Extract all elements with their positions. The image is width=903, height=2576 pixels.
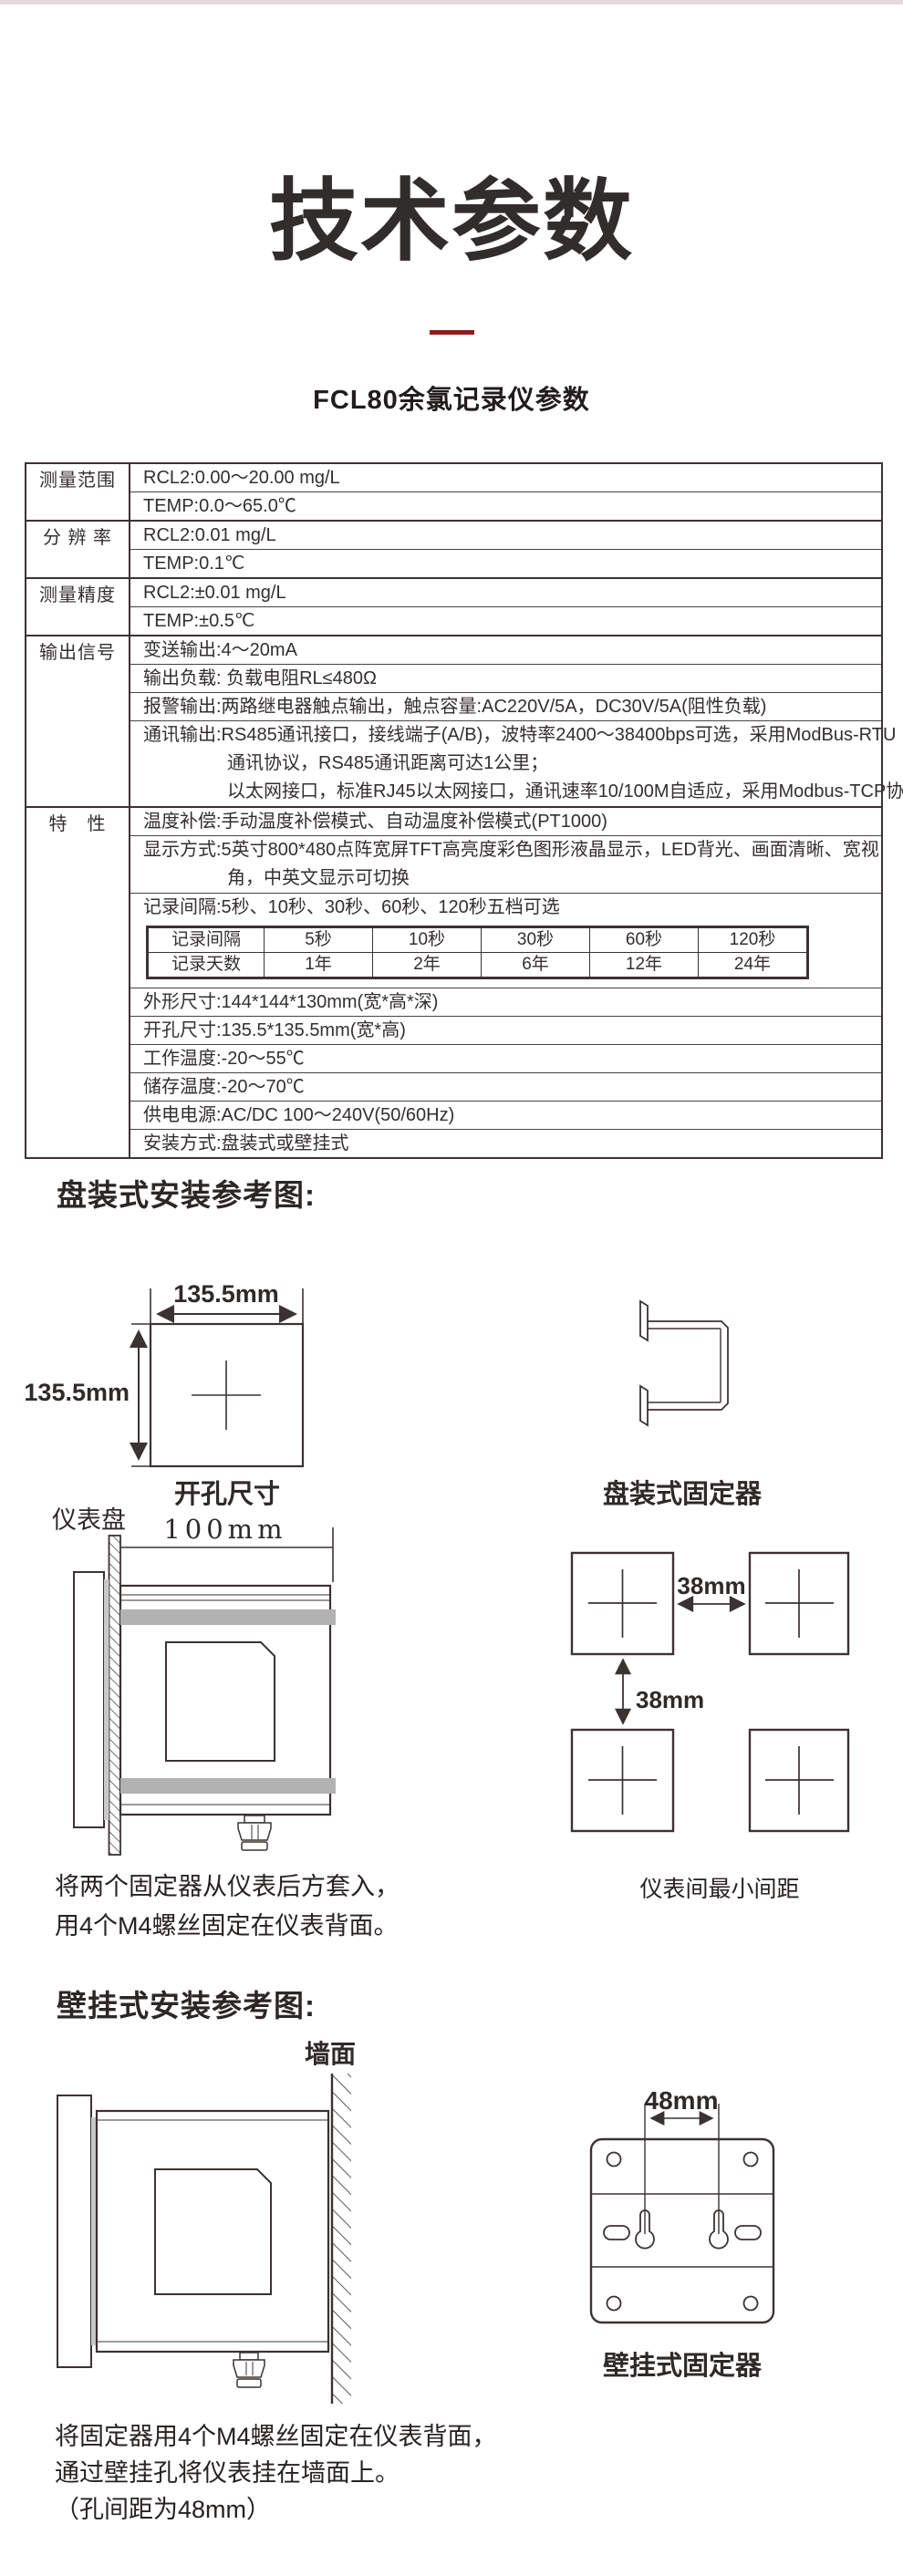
table-row: 外形尺寸:144*144*130mm(宽*高*深) xyxy=(26,988,882,1017)
table-row: TEMP:0.0～65.0℃ xyxy=(26,492,882,522)
rec-header-cell: 30秒 xyxy=(482,927,590,953)
table-row: 工作温度:-20～55℃ xyxy=(26,1045,882,1073)
spacing-v-label: 38mm xyxy=(636,1686,704,1713)
panel-cutout-diagram: 135.5mm 135.5mm 开孔尺寸 盘装式固定器 xyxy=(0,1258,903,1523)
spec-value: RCL2:±0.01 mg/L xyxy=(130,578,882,607)
record-interval-text: 记录间隔:5秒、10秒、30秒、60秒、120秒五档可选 xyxy=(143,894,877,922)
rec-days-cell: 24年 xyxy=(699,953,808,978)
hole-spacing-label: 48mm xyxy=(645,2086,719,2115)
table-row: 储存温度:-20～70℃ xyxy=(26,1073,882,1102)
table-row: 输出负载: 负载电阻RL≤480Ω xyxy=(26,665,882,693)
panel-mount-heading: 盘装式安装参考图: xyxy=(57,1177,316,1214)
wall-fixer-plate xyxy=(591,2139,773,2323)
spec-value: 供电电源:AC/DC 100～240V(50/60Hz) xyxy=(130,1102,882,1130)
spec-label-range: 测量范围 xyxy=(26,463,130,521)
side-slot xyxy=(735,2226,761,2240)
spec-label-output: 输出信号 xyxy=(26,636,130,807)
fixer-band-bottom xyxy=(120,1778,336,1794)
spec-value: 外形尺寸:144*144*130mm(宽*高*深) xyxy=(130,988,882,1017)
spec-value-record-interval: 记录间隔:5秒、10秒、30秒、60秒、120秒五档可选 记录间隔 5秒 10秒… xyxy=(130,894,882,988)
panel-mount-note: 将两个固定器从仪表后方套入， 用4个M4螺丝固定在仪表背面。 xyxy=(55,1867,400,1946)
table-row: 输出信号 变送输出:4～20mA xyxy=(26,636,882,665)
rec-header-cell: 5秒 xyxy=(265,927,373,953)
spec-value: RCL2:0.00～20.00 mg/L xyxy=(130,463,882,492)
panel-fixer-bracket xyxy=(640,1301,728,1425)
spec-value: 开孔尺寸:135.5*135.5mm(宽*高) xyxy=(130,1017,882,1045)
screw-hole xyxy=(607,2153,621,2167)
panel-note-line-2: 用4个M4螺丝固定在仪表背面。 xyxy=(55,1907,400,1946)
table-row: 安装方式:盘装式或壁挂式 xyxy=(26,1130,882,1159)
title-accent-dash xyxy=(430,330,474,335)
comm-line-3: 以太网接口，标准RJ45以太网接口，通讯速率10/100M自适应，采用Modbu… xyxy=(143,778,877,806)
body-recess-square xyxy=(155,2169,271,2294)
spec-label-resolution: 分 辨 率 xyxy=(26,521,130,578)
cutout-height-label: 135.5mm xyxy=(24,1379,130,1406)
wall-mount-heading: 壁挂式安装参考图: xyxy=(57,1988,316,2024)
table-row: 测量范围 RCL2:0.00～20.00 mg/L xyxy=(26,463,882,492)
spec-table: 测量范围 RCL2:0.00～20.00 mg/L TEMP:0.0～65.0℃… xyxy=(25,462,883,1159)
cutout-width-label: 135.5mm xyxy=(173,1280,279,1308)
table-row: 开孔尺寸:135.5*135.5mm(宽*高) xyxy=(26,1017,882,1045)
wall-mount-note: 将固定器用4个M4螺丝固定在仪表背面， 通过壁挂孔将仪表挂在墙面上。 （孔间距为… xyxy=(55,2418,497,2528)
bracket-bottom-tab xyxy=(640,1386,648,1425)
spec-value: 安装方式:盘装式或壁挂式 xyxy=(130,1130,882,1159)
spec-value: TEMP:0.0～65.0℃ xyxy=(130,492,882,522)
panel-label: 仪表盘 xyxy=(52,1506,126,1534)
spec-value: 输出负载: 负载电阻RL≤480Ω xyxy=(130,665,882,693)
rec-header-cell: 10秒 xyxy=(373,927,482,953)
fixer-band-top xyxy=(120,1609,336,1625)
screw-hole xyxy=(607,2297,621,2311)
bracket-outline xyxy=(648,1321,728,1410)
table-row: 分 辨 率 RCL2:0.01 mg/L xyxy=(26,521,882,550)
spec-label-features: 特 性 xyxy=(26,807,130,1158)
panel-wall-hatch xyxy=(109,1536,121,1855)
screw-hole xyxy=(744,2153,758,2167)
spec-value: 工作温度:-20～55℃ xyxy=(130,1045,882,1073)
depth-label: 100mm xyxy=(163,1514,286,1545)
table-row: 记录间隔 5秒 10秒 30秒 60秒 120秒 xyxy=(148,927,808,953)
table-row: 显示方式:5英寸800*480点阵宽屏TFT高亮度彩色图形液晶显示，LED背光、… xyxy=(26,836,882,894)
side-slot xyxy=(604,2226,629,2240)
wall-note-line-3: （孔间距为48mm） xyxy=(55,2491,497,2528)
panel-side-view-diagram: 仪表盘 100mm 38mm 38mm xyxy=(0,1505,903,1869)
spec-value: 报警输出:两路继电器触点输出，触点容量:AC220V/5A，DC30V/5A(阻… xyxy=(130,693,882,721)
rec-header-cell: 记录间隔 xyxy=(148,927,265,953)
min-spacing-caption: 仪表间最小间距 xyxy=(628,1871,811,1904)
rec-days-cell: 12年 xyxy=(590,953,699,978)
instrument-bezel xyxy=(57,2095,91,2367)
spec-value: 储存温度:-20～70℃ xyxy=(130,1073,882,1102)
table-row: 供电电源:AC/DC 100～240V(50/60Hz) xyxy=(26,1102,882,1130)
table-row: 通讯输出:RS485通讯接口，接线端子(A/B)，波特率2400～38400bp… xyxy=(26,721,882,808)
spec-value: 温度补偿:手动温度补偿模式、自动温度补偿模式(PT1000) xyxy=(130,807,882,836)
spec-value-display: 显示方式:5英寸800*480点阵宽屏TFT高亮度彩色图形液晶显示，LED背光、… xyxy=(130,836,882,894)
spacing-h-label: 38mm xyxy=(677,1572,745,1599)
rec-days-cell: 记录天数 xyxy=(148,953,265,978)
table-row: 记录天数 1年 2年 6年 12年 24年 xyxy=(148,953,808,978)
record-capacity-table: 记录间隔 5秒 10秒 30秒 60秒 120秒 记录天数 1年 2年 6年 xyxy=(146,926,809,979)
table-row: 报警输出:两路继电器触点输出，触点容量:AC220V/5A，DC30V/5A(阻… xyxy=(26,693,882,721)
rec-header-cell: 120秒 xyxy=(699,927,808,953)
page-title: 技术参数 xyxy=(0,173,903,268)
cable-gland-icon xyxy=(238,1816,271,1850)
wall-fixer-caption: 壁挂式固定器 xyxy=(603,2350,763,2381)
display-line-2: 角，中英文显示可切换 xyxy=(143,864,877,893)
instrument-bezel xyxy=(74,1572,104,1827)
spec-value: RCL2:0.01 mg/L xyxy=(130,521,882,550)
panel-note-line-1: 将两个固定器从仪表后方套入， xyxy=(55,1867,400,1907)
panel-gasket xyxy=(104,1579,109,1820)
cable-gland-icon xyxy=(234,2353,265,2387)
page-subtitle: FCL80余氯记录仪参数 xyxy=(0,378,903,417)
wall-label: 墙面 xyxy=(305,2040,356,2068)
rec-header-cell: 60秒 xyxy=(590,927,699,953)
table-row: 测量精度 RCL2:±0.01 mg/L xyxy=(26,578,882,607)
page-top-border xyxy=(0,0,903,5)
screw-hole xyxy=(744,2297,758,2311)
spec-value: 变送输出:4～20mA xyxy=(130,636,882,665)
wall-note-line-2: 通过壁挂孔将仪表挂在墙面上。 xyxy=(55,2455,497,2491)
rec-days-cell: 1年 xyxy=(265,953,373,978)
table-row: 记录间隔:5秒、10秒、30秒、60秒、120秒五档可选 记录间隔 5秒 10秒… xyxy=(26,894,882,988)
display-line-1: 显示方式:5英寸800*480点阵宽屏TFT高亮度彩色图形液晶显示，LED背光、… xyxy=(143,836,877,864)
comm-line-1: 通讯输出:RS485通讯接口，接线端子(A/B)，波特率2400～38400bp… xyxy=(143,721,877,750)
rec-days-cell: 2年 xyxy=(373,953,482,978)
table-row: TEMP:±0.5℃ xyxy=(26,607,882,636)
spec-value: TEMP:0.1℃ xyxy=(130,550,882,579)
table-row: 特 性 温度补偿:手动温度补偿模式、自动温度补偿模式(PT1000) xyxy=(26,807,882,836)
wall-note-line-1: 将固定器用4个M4螺丝固定在仪表背面， xyxy=(55,2418,497,2455)
wall-hatch xyxy=(332,2074,351,2404)
spec-label-accuracy: 测量精度 xyxy=(26,578,130,636)
rec-days-cell: 6年 xyxy=(482,953,590,978)
spec-value: TEMP:±0.5℃ xyxy=(130,607,882,636)
body-recess-square xyxy=(166,1642,275,1761)
wall-mount-diagram: 墙面 48mm 壁挂式固定器 xyxy=(0,2029,903,2416)
table-row: TEMP:0.1℃ xyxy=(26,550,882,579)
bracket-top-tab xyxy=(640,1301,648,1340)
comm-line-2: 通讯协议，RS485通讯距离可达1公里； xyxy=(143,750,877,778)
spec-value-comm: 通讯输出:RS485通讯接口，接线端子(A/B)，波特率2400～38400bp… xyxy=(130,721,882,808)
